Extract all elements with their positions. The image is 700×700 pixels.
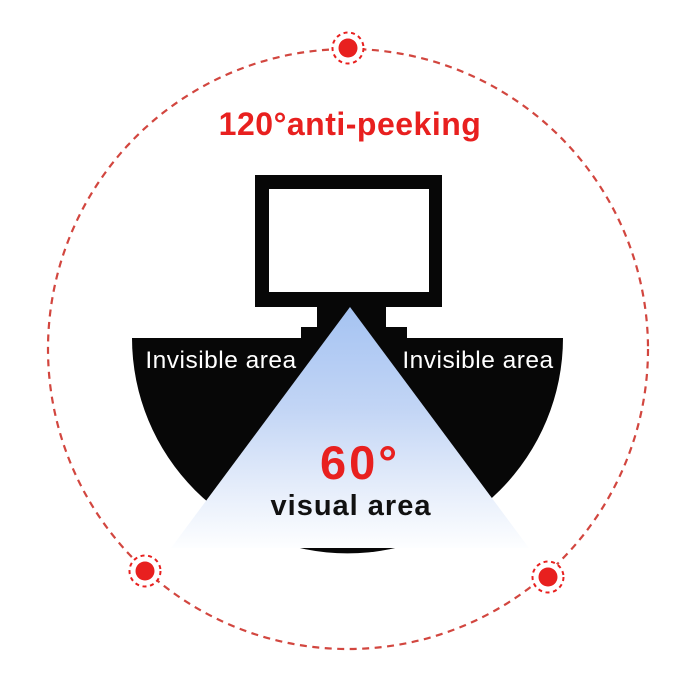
anti-peeking-diagram: 120°anti-peeking Invisible area Invisibl… <box>0 0 700 700</box>
viewer-dot-top <box>333 33 364 64</box>
viewer-dot-bottom-left <box>130 556 161 587</box>
invisible-area-label-left: Invisible area <box>145 347 296 374</box>
invisible-area-label-right: Invisible area <box>402 347 553 374</box>
viewer-dot-bottom-right <box>533 562 564 593</box>
anti-peeking-title: 120°anti-peeking <box>219 106 482 142</box>
monitor-screen <box>269 189 429 292</box>
viewer-dot-core <box>136 562 155 581</box>
visual-angle-label: 60° <box>320 436 400 489</box>
viewer-dot-core <box>539 568 558 587</box>
viewer-dot-core <box>339 39 358 58</box>
diagram-container: 120°anti-peeking Invisible area Invisibl… <box>0 0 700 700</box>
visual-area-label: visual area <box>271 490 432 522</box>
